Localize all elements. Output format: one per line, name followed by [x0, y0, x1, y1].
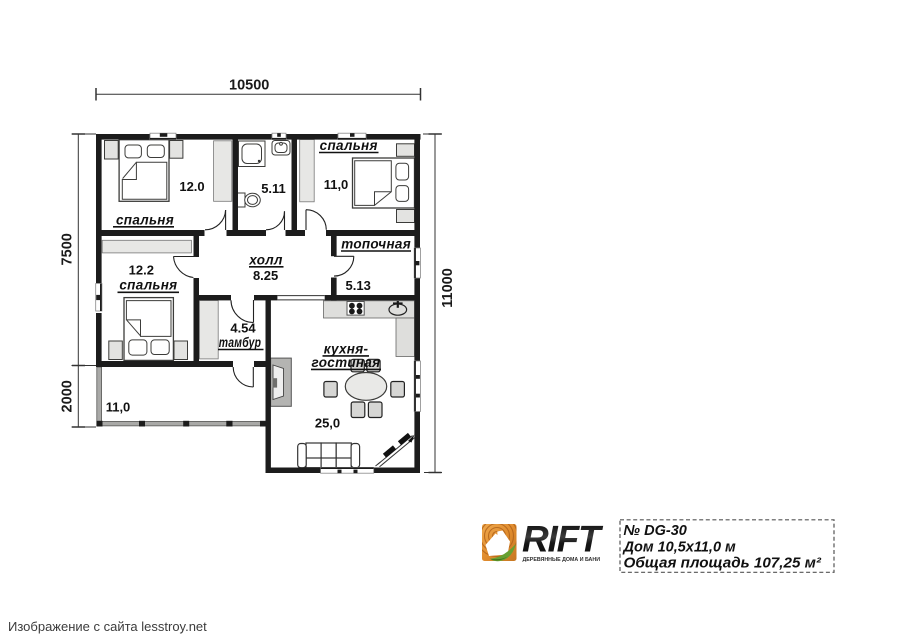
svg-text:Общая площадь 107,25 м²: Общая площадь 107,25 м² — [624, 556, 823, 572]
svg-text:10500: 10500 — [229, 78, 269, 94]
svg-text:8.25: 8.25 — [253, 268, 278, 283]
svg-text:4.54: 4.54 — [230, 321, 256, 336]
svg-text:12.2: 12.2 — [129, 262, 154, 277]
svg-text:11,0: 11,0 — [324, 177, 349, 192]
svg-text:№ DG-30: № DG-30 — [624, 523, 687, 539]
svg-text:гостиная: гостиная — [312, 355, 381, 370]
svg-text:Дом 10,5х11,0 м: Дом 10,5х11,0 м — [622, 540, 737, 556]
svg-text:холл: холл — [248, 252, 283, 267]
svg-text:спальня: спальня — [320, 138, 378, 153]
svg-text:25,0: 25,0 — [315, 416, 340, 431]
svg-text:5.13: 5.13 — [346, 278, 371, 293]
svg-text:топочная: топочная — [341, 236, 411, 251]
svg-text:5.11: 5.11 — [261, 181, 286, 196]
svg-text:ДЕРЕВЯННЫЕ ДОМА И БАНИ: ДЕРЕВЯННЫЕ ДОМА И БАНИ — [523, 557, 601, 563]
svg-text:тамбур: тамбур — [219, 335, 262, 350]
svg-text:RIFT: RIFT — [522, 519, 604, 560]
svg-text:11000: 11000 — [440, 268, 456, 308]
svg-text:2000: 2000 — [60, 380, 76, 412]
svg-text:спальня: спальня — [116, 213, 174, 228]
svg-text:Изображение с сайта lesstroy.n: Изображение с сайта lesstroy.net — [8, 619, 207, 634]
svg-text:12.0: 12.0 — [179, 179, 204, 194]
svg-text:спальня: спальня — [119, 278, 177, 293]
svg-text:7500: 7500 — [60, 233, 76, 265]
svg-text:11,0: 11,0 — [106, 400, 131, 415]
